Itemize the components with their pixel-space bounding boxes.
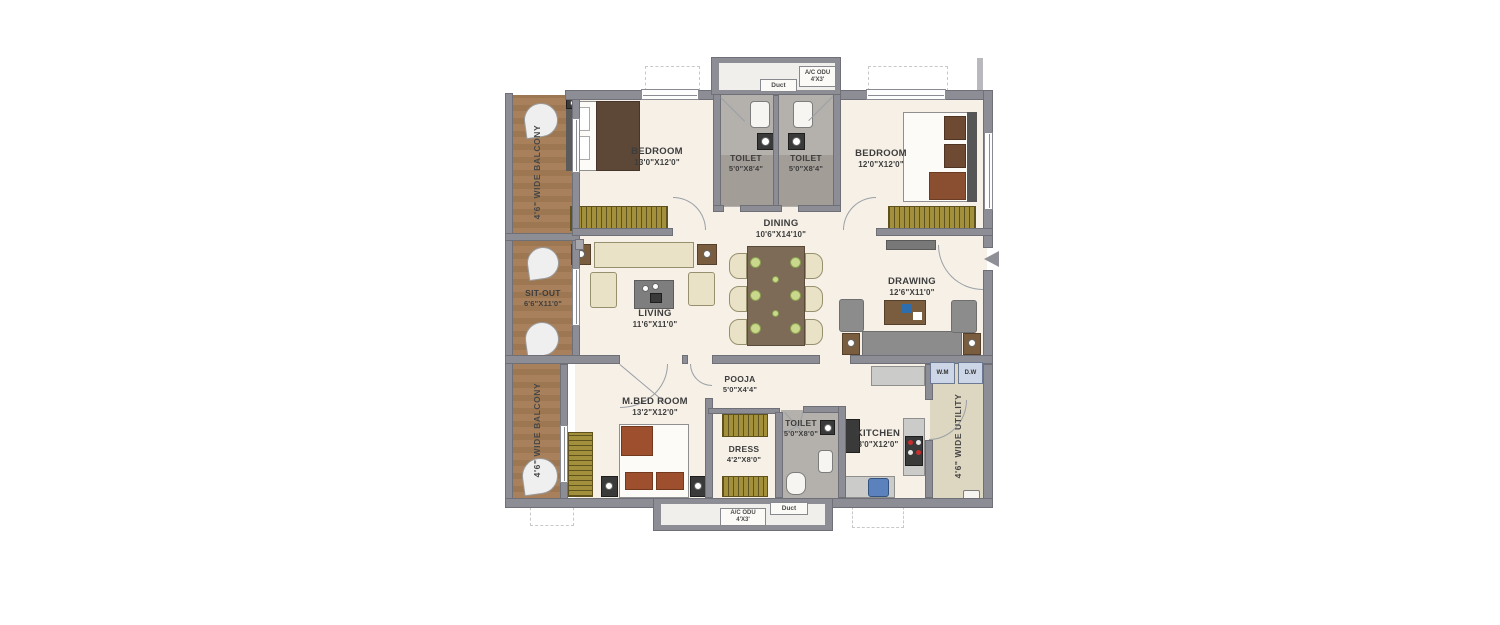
room-label-sitout: SIT-OUT6'6"X11'0" [512,288,574,309]
wc-toilet [793,101,813,128]
dining-chair [729,286,747,312]
plate [750,257,761,268]
duct-label-box: Duct [770,502,808,515]
kitchen-utility-wall [925,440,933,498]
toilet-wall [713,93,721,208]
side-table-lamp [703,250,711,258]
room-label-balcony-bottom: 4'6" WIDE BALCONY [531,370,543,490]
bed-pillow [944,116,966,140]
table-decor [772,276,779,283]
kitchen-sink [868,478,889,497]
wall-balcony-sitout [505,233,580,241]
ac-odu-size: 4'X3' [800,77,835,84]
room-label-dress: DRESS4'2"X8'0" [714,444,774,465]
pooja-wall-bottom [708,408,780,414]
window [866,89,946,100]
washbasin-bowl [792,137,801,146]
window [641,89,699,100]
washing-machine-label: W.M [937,370,949,376]
mid-wall [505,355,620,364]
plate [790,257,801,268]
ac-odu-box: A/C ODU4'X3' [720,508,766,526]
bed-pillow [656,472,684,490]
room-label-utility: 4'6" WIDE UTILITY [952,376,964,496]
bedroom1-wall-bottom [572,228,673,236]
room-label-balcony-top: 4'6" WIDE BALCONY [531,112,543,232]
wc-toilet [750,101,770,128]
dining-chair [805,286,823,312]
room-label-kitchen: KITCHEN8'0"X12'0" [838,428,918,451]
armchair [590,272,617,308]
toilet3-kitchen-wall [838,406,846,498]
bed-pillow [944,144,966,168]
tv-unit [886,240,936,250]
floor-plan: W.M D.W [0,0,1500,625]
room-label-pooja: POOJA5'0"X4'4" [710,374,770,395]
lamp-icon [605,482,613,490]
toilet-wall-bottom [713,205,724,212]
projection-outline [645,66,700,91]
duct-label-box: Duct [760,79,797,92]
bed-blanket [621,426,653,456]
table-decor [652,283,659,290]
kitchen-counter [871,366,925,386]
window [984,132,993,210]
toilet-wall-bottom [798,205,841,212]
bed-headboard [967,112,977,202]
table-decor [901,304,912,313]
armchair [688,272,715,306]
armchair [951,300,977,333]
window [560,425,568,483]
wardrobe [722,476,768,497]
dining-chair [729,253,747,279]
table-decor [650,293,662,303]
washbasin-bowl [761,137,770,146]
plate [750,323,761,334]
ac-odu-box: A/C ODU4'X3' [799,66,836,87]
wc-toilet [818,450,833,473]
ac-odu-size: 4'X3' [721,517,765,524]
side-table-lamp [847,339,855,347]
room-label-living: LIVING11'6"X11'0" [605,308,705,331]
outer-wall-right [983,364,993,508]
sofa [862,331,962,356]
room-label-toilet1: TOILET5'0"X8'4" [716,153,776,174]
room-label-mbedroom: M.BED ROOM13'2"X12'0" [605,396,705,419]
ac-odu-label: A/C ODU [721,510,765,517]
wardrobe [568,432,593,497]
outer-wall-right [983,270,993,364]
mid-wall [712,355,820,364]
room-label-bedroom2: BEDROOM12'0"X12'0" [831,148,931,171]
lamp-icon [694,482,702,490]
room-label-bedroom1: BEDROOM13'0"X12'0" [607,146,707,169]
table-decor [913,312,922,320]
bed-blanket [929,172,966,200]
dining-chair [805,253,823,279]
bedroom2-wall-bottom [876,228,993,236]
bed-pillow [579,136,590,160]
room-label-dining: DINING10'6"X14'10" [731,218,831,241]
duct-label: Duct [761,82,796,89]
table-decor [642,285,649,292]
projection-outline [868,66,948,91]
switch-box [575,239,584,250]
wardrobe [722,414,768,437]
bed-pillow [625,472,653,490]
plate [790,323,801,334]
table-decor [772,310,779,317]
stove-burner [916,450,921,455]
dining-chair [805,319,823,345]
room-label-drawing: DRAWING12'6"X11'0" [862,276,962,299]
wall-stub [977,58,983,92]
bed-pillow [579,107,590,131]
side-table-lamp [968,339,976,347]
toilet-divider-wall [773,95,779,208]
duct-label: Duct [771,505,807,512]
ac-odu-label: A/C ODU [800,70,835,77]
entrance-arrow-icon [984,251,999,267]
mid-wall [682,355,688,364]
dishwasher-label: D.W [965,370,977,376]
room-label-toilet3: TOILET5'0"X8'0" [771,418,831,439]
plate [750,290,761,301]
shower-tray [786,472,806,495]
plate [790,290,801,301]
room-label-toilet2: TOILET5'0"X8'4" [776,153,836,174]
armchair [839,299,864,332]
window [572,118,580,173]
sofa [594,242,694,268]
toilet-wall-bottom [740,205,782,212]
dining-chair [729,319,747,345]
stove-burner [908,450,913,455]
